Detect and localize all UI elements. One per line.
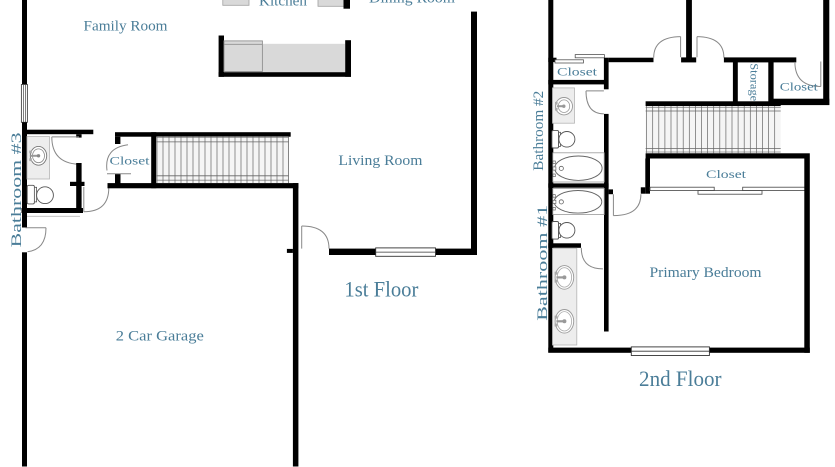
svg-text:Bathroom #2: Bathroom #2 [531,91,547,171]
svg-text:Closet: Closet [557,67,598,79]
svg-text:Family Room: Family Room [84,19,168,35]
svg-text:Closet: Closet [780,82,819,94]
svg-text:Storage: Storage [747,63,759,101]
svg-text:2nd Floor: 2nd Floor [639,366,722,391]
svg-text:Primary Bedroom: Primary Bedroom [650,265,762,281]
svg-text:1st Floor: 1st Floor [344,276,419,301]
svg-text:Bathroom #1: Bathroom #1 [535,205,551,321]
svg-text:Dining Room: Dining Room [369,0,455,7]
svg-text:Closet: Closet [706,169,747,181]
svg-text:Kitchen: Kitchen [259,0,308,10]
svg-text:Bathroom #3: Bathroom #3 [9,132,25,247]
svg-text:2 Car Garage: 2 Car Garage [116,329,204,345]
svg-text:Closet: Closet [110,156,151,168]
svg-text:Living Room: Living Room [338,153,422,169]
